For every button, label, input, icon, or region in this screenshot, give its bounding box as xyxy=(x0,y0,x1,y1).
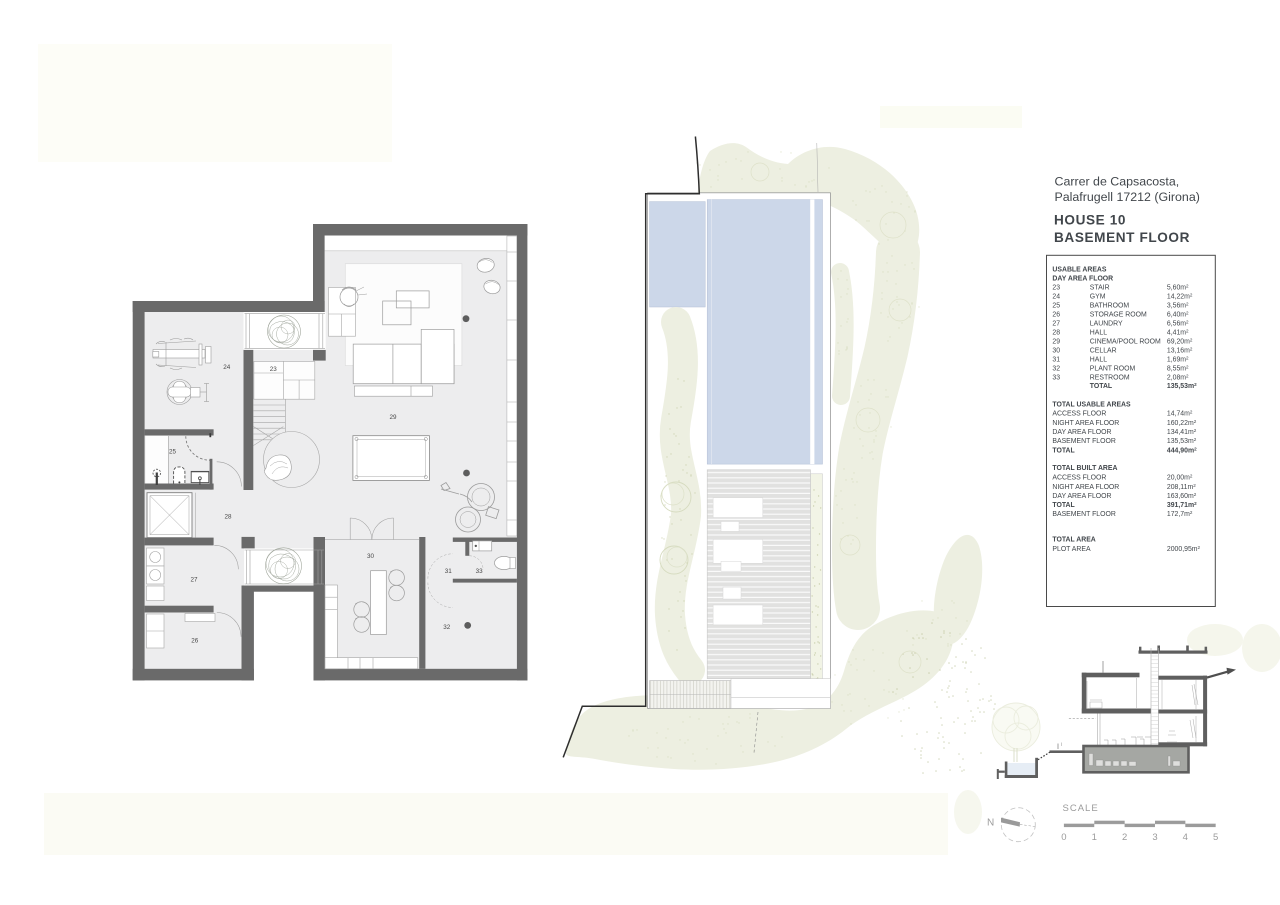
svg-text:GYM: GYM xyxy=(1090,294,1106,301)
svg-text:Carrer de Capsacosta,: Carrer de Capsacosta, xyxy=(1055,175,1180,189)
svg-text:0: 0 xyxy=(1061,832,1066,843)
svg-text:172,7m2: 172,7m2 xyxy=(1167,510,1193,518)
svg-text:2: 2 xyxy=(1122,832,1127,843)
svg-text:4,41m2: 4,41m2 xyxy=(1167,329,1189,337)
svg-text:BASEMENT FLOOR: BASEMENT FLOOR xyxy=(1052,511,1115,518)
svg-text:USABLE AREAS: USABLE AREAS xyxy=(1052,267,1107,274)
svg-text:BASEMENT FLOOR: BASEMENT FLOOR xyxy=(1054,230,1190,245)
svg-text:32: 32 xyxy=(1052,366,1060,373)
svg-text:ACCESS FLOOR: ACCESS FLOOR xyxy=(1052,474,1106,481)
svg-text:TOTAL: TOTAL xyxy=(1052,502,1074,509)
svg-text:ACCESS FLOOR: ACCESS FLOOR xyxy=(1052,410,1106,417)
svg-text:NIGHT AREA FLOOR: NIGHT AREA FLOOR xyxy=(1052,420,1119,427)
svg-text:135,53m2: 135,53m2 xyxy=(1167,382,1197,390)
svg-text:4: 4 xyxy=(1183,832,1188,843)
svg-text:CELLAR: CELLAR xyxy=(1090,348,1117,355)
svg-text:30: 30 xyxy=(1052,348,1060,355)
svg-text:CINEMA/POOL ROOM: CINEMA/POOL ROOM xyxy=(1090,339,1161,346)
svg-text:26: 26 xyxy=(1052,312,1060,319)
svg-text:27: 27 xyxy=(1052,321,1060,328)
svg-text:24: 24 xyxy=(1052,294,1060,301)
svg-text:3,56m2: 3,56m2 xyxy=(1167,302,1189,310)
svg-text:DAY AREA FLOOR: DAY AREA FLOOR xyxy=(1052,429,1111,436)
svg-text:28: 28 xyxy=(224,514,232,521)
svg-text:HOUSE 10: HOUSE 10 xyxy=(1054,213,1126,228)
svg-text:391,71m2: 391,71m2 xyxy=(1167,501,1197,509)
svg-text:26: 26 xyxy=(191,637,199,644)
svg-text:DAY AREA FLOOR: DAY AREA FLOOR xyxy=(1052,493,1111,500)
svg-text:25: 25 xyxy=(1052,303,1060,310)
svg-text:LAUNDRY: LAUNDRY xyxy=(1090,321,1123,328)
svg-text:24: 24 xyxy=(223,364,231,371)
svg-text:6,40m2: 6,40m2 xyxy=(1167,311,1189,319)
svg-text:8,55m2: 8,55m2 xyxy=(1167,365,1189,373)
svg-text:HALL: HALL xyxy=(1090,357,1107,364)
svg-text:134,41m2: 134,41m2 xyxy=(1167,428,1197,436)
svg-text:33: 33 xyxy=(1052,375,1060,382)
svg-text:163,60m2: 163,60m2 xyxy=(1167,492,1197,500)
svg-text:5,60m2: 5,60m2 xyxy=(1167,284,1189,292)
svg-text:TOTAL: TOTAL xyxy=(1090,383,1112,390)
svg-text:STAIR: STAIR xyxy=(1090,285,1110,292)
svg-text:32: 32 xyxy=(443,624,451,631)
svg-text:5: 5 xyxy=(1213,832,1218,843)
svg-text:3: 3 xyxy=(1152,832,1157,843)
svg-text:31: 31 xyxy=(1052,357,1060,364)
svg-text:27: 27 xyxy=(190,577,198,584)
svg-text:6,56m2: 6,56m2 xyxy=(1167,320,1189,328)
svg-text:N: N xyxy=(987,818,994,829)
svg-text:HALL: HALL xyxy=(1090,330,1107,337)
svg-text:STORAGE ROOM: STORAGE ROOM xyxy=(1090,312,1147,319)
svg-text:TOTAL AREA: TOTAL AREA xyxy=(1052,537,1095,544)
svg-text:NIGHT AREA FLOOR: NIGHT AREA FLOOR xyxy=(1052,484,1119,491)
svg-text:29: 29 xyxy=(389,414,397,421)
svg-text:31: 31 xyxy=(445,568,453,575)
svg-text:69,20m2: 69,20m2 xyxy=(1167,338,1193,346)
svg-text:25: 25 xyxy=(169,449,177,456)
svg-text:RESTROOM: RESTROOM xyxy=(1090,375,1130,382)
svg-text:160,22m2: 160,22m2 xyxy=(1167,419,1197,427)
svg-text:14,22m2: 14,22m2 xyxy=(1167,293,1193,301)
svg-text:30: 30 xyxy=(367,553,375,560)
svg-text:BATHROOM: BATHROOM xyxy=(1090,303,1130,310)
svg-text:TOTAL: TOTAL xyxy=(1052,447,1074,454)
svg-text:29: 29 xyxy=(1052,339,1060,346)
svg-text:33: 33 xyxy=(476,568,484,575)
svg-text:20,00m2: 20,00m2 xyxy=(1167,473,1193,481)
svg-text:14,74m2: 14,74m2 xyxy=(1167,409,1193,417)
svg-text:2000,95m2: 2000,95m2 xyxy=(1167,545,1201,553)
svg-text:PLANT ROOM: PLANT ROOM xyxy=(1090,366,1136,373)
svg-text:444,90m2: 444,90m2 xyxy=(1167,446,1197,454)
svg-text:2,08m2: 2,08m2 xyxy=(1167,374,1189,382)
svg-text:DAY AREA FLOOR: DAY AREA FLOOR xyxy=(1052,275,1113,282)
svg-text:28: 28 xyxy=(1052,330,1060,337)
svg-text:SCALE: SCALE xyxy=(1063,803,1099,814)
svg-text:13,16m2: 13,16m2 xyxy=(1167,347,1193,355)
svg-text:Palafrugell 17212 (Girona): Palafrugell 17212 (Girona) xyxy=(1055,190,1200,204)
svg-text:TOTAL BUILT AREA: TOTAL BUILT AREA xyxy=(1052,465,1117,472)
svg-text:TOTAL USABLE AREAS: TOTAL USABLE AREAS xyxy=(1052,401,1131,408)
svg-text:PLOT AREA: PLOT AREA xyxy=(1052,546,1091,553)
svg-text:23: 23 xyxy=(1052,285,1060,292)
svg-text:135,53m2: 135,53m2 xyxy=(1167,437,1197,445)
svg-text:BASEMENT FLOOR: BASEMENT FLOOR xyxy=(1052,438,1115,445)
svg-text:1,69m2: 1,69m2 xyxy=(1167,356,1189,364)
svg-text:1: 1 xyxy=(1092,832,1097,843)
svg-text:23: 23 xyxy=(270,366,278,373)
svg-text:208,11m2: 208,11m2 xyxy=(1167,483,1196,491)
